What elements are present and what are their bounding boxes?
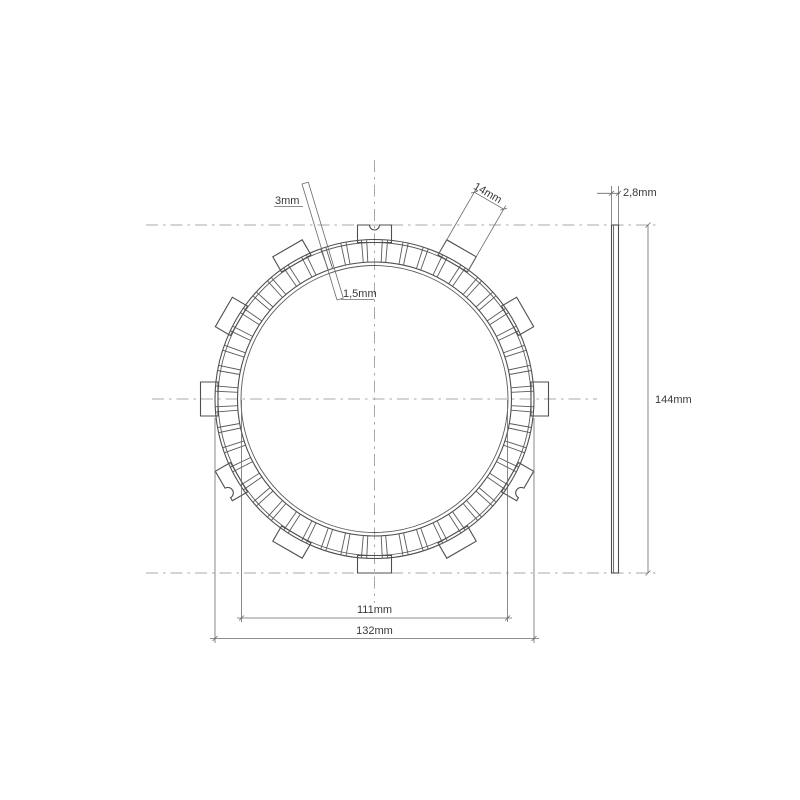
dim-label-outer-diameter: 132mm: [356, 625, 393, 637]
dim-label-tab-width: 14mm: [471, 181, 503, 207]
pad-segment-edge: [306, 255, 316, 275]
pad-segment-edge: [508, 365, 530, 370]
pad-segment-edge: [346, 534, 350, 556]
pad-segment-edge: [253, 296, 270, 311]
dim-overall-height: 144mm: [648, 225, 692, 573]
pad-segment-edge: [463, 277, 478, 294]
pad-segment-edge: [509, 371, 531, 375]
pad-segment-edge: [271, 504, 286, 521]
leader-end-tick: [302, 182, 308, 184]
pad-segment-edge: [230, 458, 250, 468]
technical-drawing-canvas: 2,8mm 144mm 111mm 132mm: [0, 0, 800, 800]
leader-line: [468, 206, 506, 272]
dim-label-thickness: 2,8mm: [623, 187, 657, 199]
side-view-outline: [612, 225, 619, 573]
dim-label-groove: 1,5mm: [343, 288, 377, 300]
dim-label-overall-height: 144mm: [655, 394, 692, 406]
pad-segment-edge: [453, 512, 466, 530]
leader-line: [302, 184, 337, 300]
dimensions: 2,8mm 144mm 111mm 132mm: [210, 181, 692, 643]
pad-segment-edge: [498, 458, 518, 468]
pad-segment-edge: [219, 365, 241, 370]
pad-segment-edge: [453, 268, 466, 287]
pad-segment-edge: [404, 533, 409, 555]
pad-segment-edge: [433, 255, 443, 275]
pad-segment-edge: [306, 523, 316, 543]
dim-label-pad-material: 3mm: [275, 195, 299, 207]
pad-segment-edge: [479, 488, 496, 503]
pad-segment-edge: [509, 424, 531, 428]
pad-segment-edge: [218, 424, 240, 428]
pad-segment-edge: [243, 308, 262, 321]
pad-segment-edge: [346, 242, 350, 264]
pad-segment-edge: [271, 277, 286, 294]
pad-segment-edge: [267, 281, 282, 298]
pad-segment-edge: [404, 243, 409, 265]
pad-segment-edge: [284, 268, 297, 287]
pad-segment-edge: [476, 491, 493, 506]
pad-segment-edge: [508, 428, 530, 433]
pad-segment-edge: [284, 512, 297, 530]
pad-segment-edge: [479, 296, 496, 311]
pad-segment-edge: [341, 533, 346, 555]
pad-segment-edge: [498, 331, 518, 341]
pad-segment-edge: [463, 504, 478, 521]
pad-segment-edge: [256, 491, 273, 506]
clutch-friction-plate-drawing: 2,8mm 144mm 111mm 132mm: [0, 0, 800, 800]
pad-segment-edge: [433, 523, 443, 543]
pad-segment-edge: [487, 477, 506, 490]
pad-segment-edge: [218, 371, 240, 375]
centerlines: [146, 160, 657, 603]
pad-segment-edge: [399, 534, 403, 556]
pad-segment-edge: [467, 281, 482, 298]
leader-line: [438, 189, 476, 255]
pad-segment-edge: [467, 501, 482, 518]
pad-segment-edge: [219, 428, 241, 433]
side-view-plate: [612, 225, 619, 573]
dim-label-inner-diameter: 111mm: [357, 604, 392, 616]
pad-segment-edge: [476, 292, 493, 307]
pad-segment-edge: [230, 331, 250, 341]
pad-segment-edge: [341, 243, 346, 265]
pad-segment-edge: [256, 292, 273, 307]
pad-segment-edge: [253, 488, 270, 503]
dim-thickness: 2,8mm: [597, 186, 657, 225]
pad-segment-edge: [487, 308, 506, 321]
pad-segment-edge: [399, 242, 403, 264]
pad-segment-edge: [243, 477, 262, 490]
pad-segment-edge: [267, 501, 282, 518]
